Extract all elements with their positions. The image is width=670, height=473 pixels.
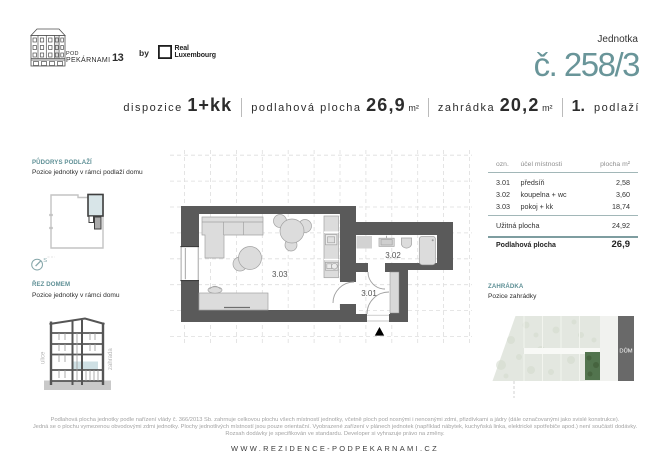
- svg-text:S: S: [43, 258, 47, 264]
- svg-text:DŮM: DŮM: [619, 348, 632, 355]
- svg-text:3.02: 3.02: [385, 251, 401, 260]
- svg-text:3.03: 3.03: [272, 270, 288, 279]
- svg-text:ulice: ulice: [41, 351, 47, 364]
- svg-text:zahrada: zahrada: [108, 348, 114, 370]
- svg-text:3.01: 3.01: [361, 289, 377, 298]
